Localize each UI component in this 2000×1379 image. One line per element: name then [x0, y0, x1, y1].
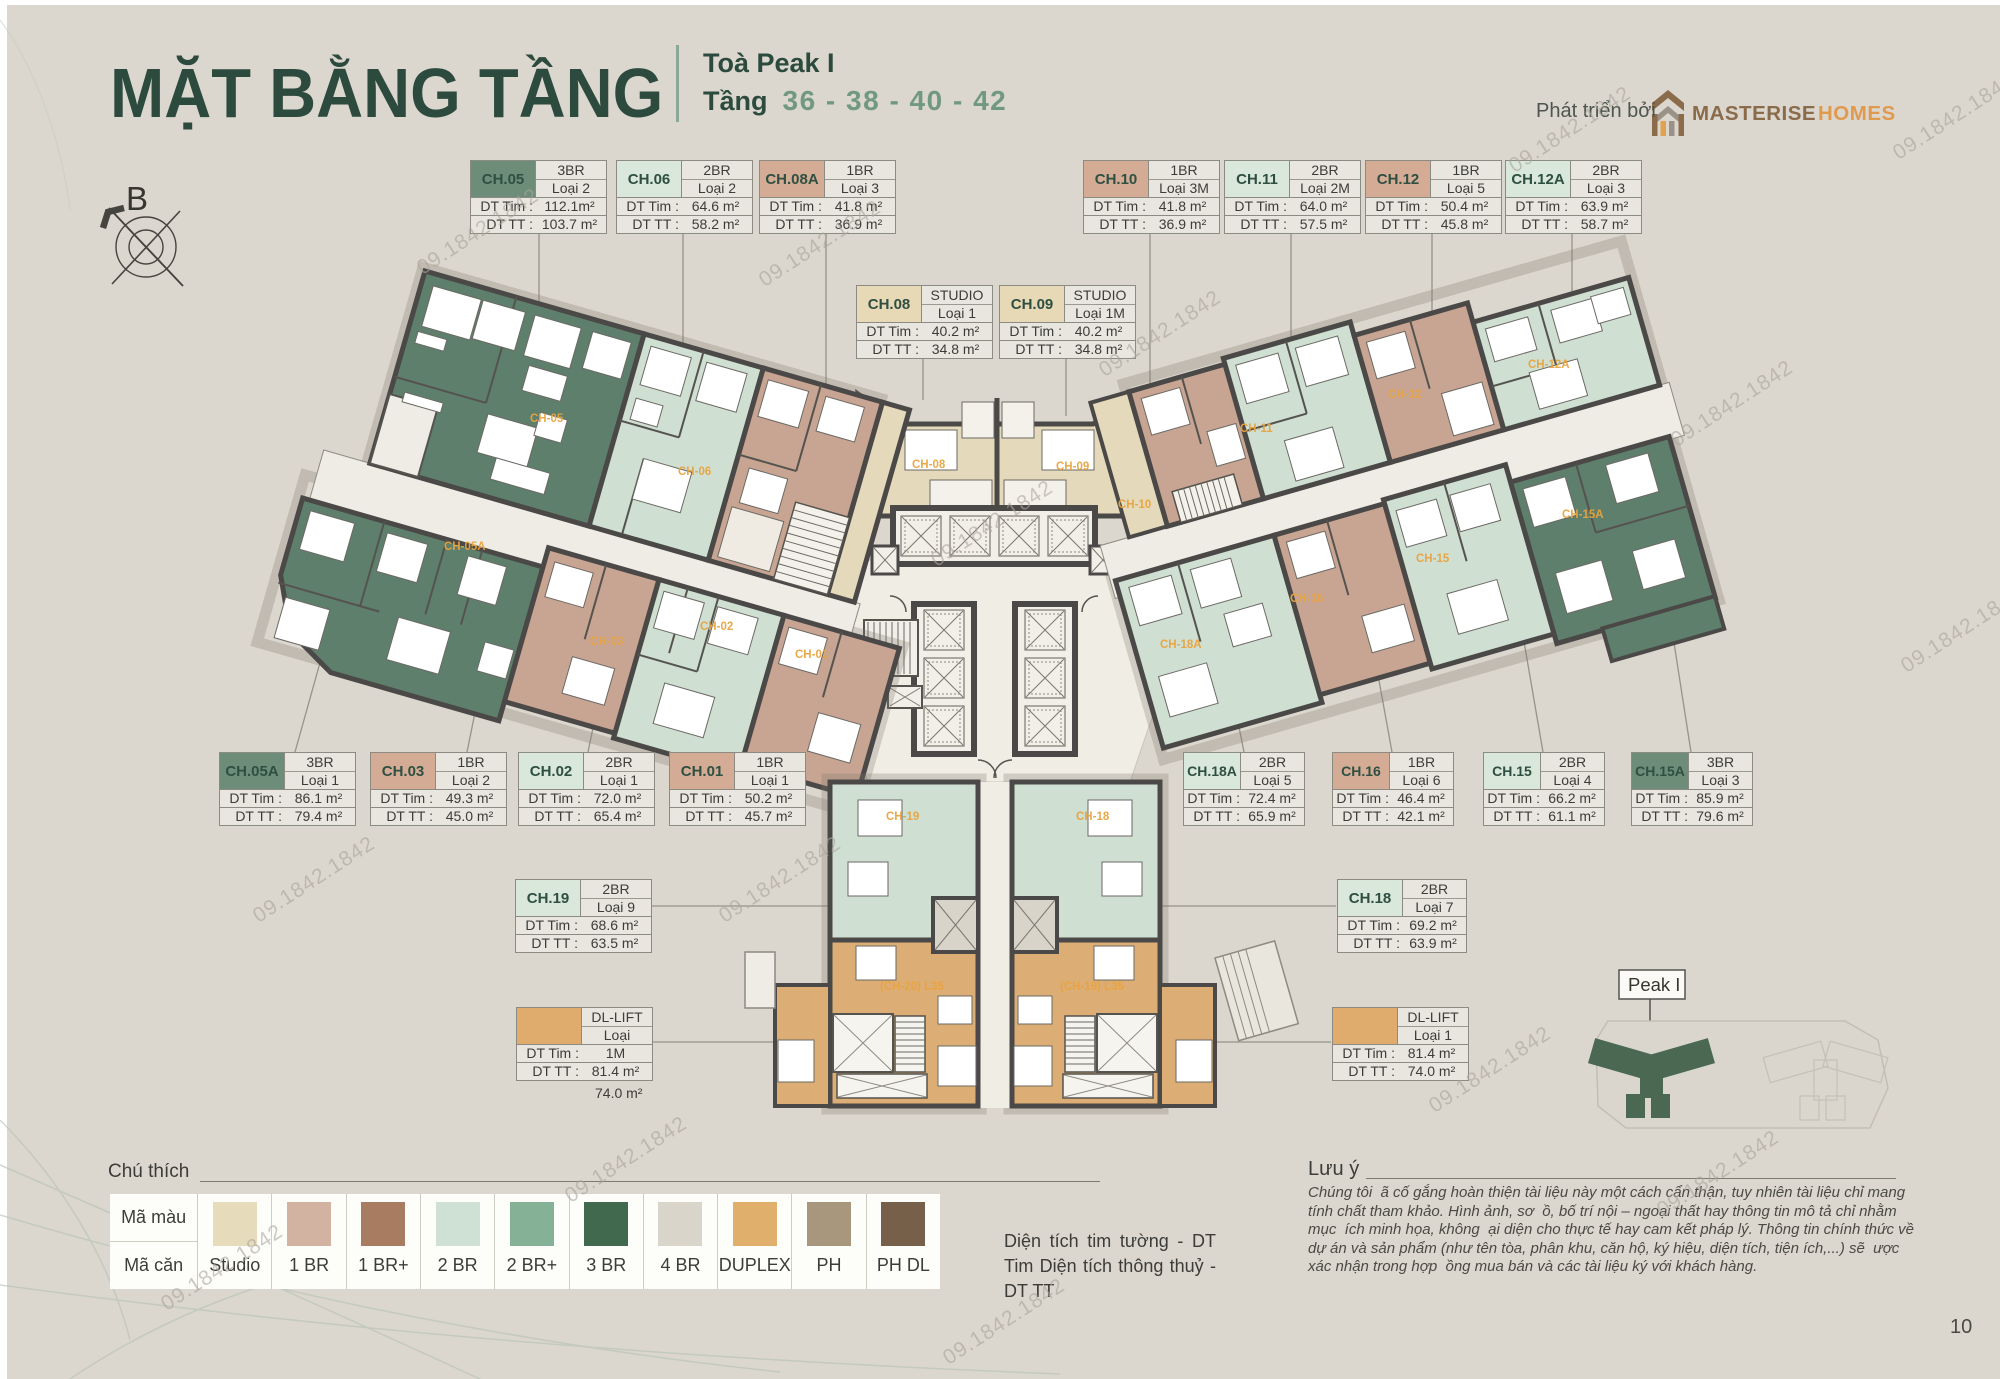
svg-text:B: B	[126, 180, 148, 217]
svg-text:CH-15: CH-15	[1416, 553, 1450, 565]
svg-text:CH-05: CH-05	[530, 413, 564, 425]
svg-text:CH-01: CH-01	[795, 649, 829, 661]
svg-text:MASTERISE: MASTERISE	[1692, 102, 1816, 125]
svg-text:CH-09: CH-09	[1056, 461, 1089, 473]
svg-text:CH-10: CH-10	[1118, 499, 1151, 511]
svg-text:CH-12: CH-12	[1388, 389, 1421, 401]
svg-text:Peak I: Peak I	[1628, 974, 1680, 995]
svg-text:CH-12A: CH-12A	[1528, 359, 1570, 371]
svg-text:CH-08: CH-08	[912, 459, 946, 471]
svg-text:CH-19: CH-19	[886, 811, 919, 823]
svg-text:(CH-20) L35: (CH-20) L35	[880, 981, 945, 993]
svg-text:CH-02: CH-02	[700, 621, 733, 633]
svg-text:CH-06: CH-06	[678, 466, 711, 478]
svg-text:CH-11: CH-11	[1240, 423, 1273, 435]
svg-text:HOMES: HOMES	[1818, 102, 1896, 125]
svg-text:CH-16: CH-16	[1290, 593, 1323, 605]
svg-text:CH-18A: CH-18A	[1160, 639, 1202, 651]
svg-text:CH-18: CH-18	[1076, 811, 1110, 823]
svg-text:CH-03: CH-03	[590, 636, 623, 648]
svg-text:CH-15A: CH-15A	[1562, 509, 1604, 521]
svg-text:(CH-19) L35: (CH-19) L35	[1060, 981, 1125, 993]
svg-text:CH-05A: CH-05A	[444, 541, 486, 553]
